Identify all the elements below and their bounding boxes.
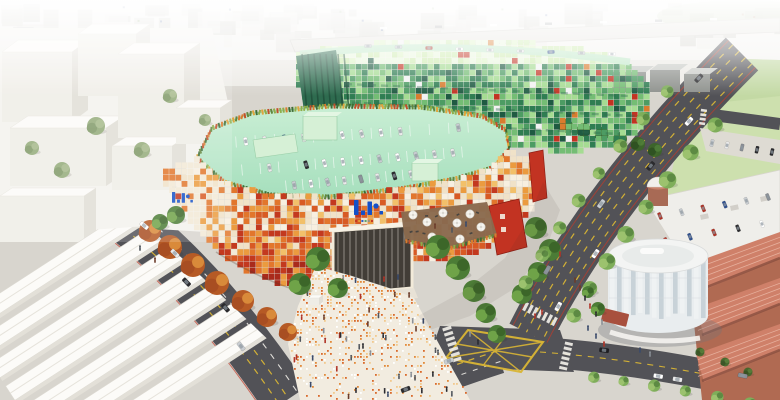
person-body bbox=[385, 337, 387, 341]
plaza-dot bbox=[375, 302, 377, 304]
facade-pixel bbox=[454, 193, 460, 199]
plaza-dot bbox=[315, 326, 317, 328]
facade-pixel bbox=[256, 268, 262, 274]
person-body bbox=[534, 315, 536, 319]
plaza-dot bbox=[354, 299, 356, 301]
plaza-dot bbox=[309, 326, 311, 328]
facade-pixel bbox=[244, 200, 250, 206]
facade-pixel bbox=[237, 243, 243, 249]
person bbox=[368, 307, 370, 313]
plaza-dot bbox=[330, 347, 332, 349]
plaza-dot bbox=[441, 362, 443, 364]
green-facade-pixel bbox=[590, 106, 596, 112]
plaza-dot bbox=[357, 302, 359, 304]
person bbox=[323, 314, 325, 320]
plaza-dot bbox=[345, 314, 347, 316]
plaza-dot bbox=[390, 299, 392, 301]
plaza-dot bbox=[438, 374, 440, 376]
tree-canopy bbox=[299, 276, 310, 287]
plaza-dot bbox=[381, 338, 383, 340]
person bbox=[595, 311, 597, 317]
facade-pixel bbox=[231, 187, 237, 193]
plaza-dot bbox=[345, 275, 347, 277]
plaza-dot bbox=[306, 383, 308, 385]
plaza-dot bbox=[387, 344, 389, 346]
facade-pixel bbox=[467, 187, 473, 193]
person-body bbox=[370, 352, 372, 356]
plaza-dot bbox=[384, 299, 386, 301]
person-head bbox=[541, 309, 543, 311]
facade-pixel bbox=[318, 212, 324, 218]
facade-pixel bbox=[337, 193, 343, 199]
person-body bbox=[324, 339, 326, 343]
person bbox=[603, 341, 605, 347]
facade-pixel bbox=[250, 206, 256, 212]
tree-canopy bbox=[690, 146, 698, 154]
person-body bbox=[435, 336, 437, 340]
plaza-dot bbox=[324, 293, 326, 295]
green-facade-pixel bbox=[428, 100, 434, 106]
person-head bbox=[312, 355, 314, 357]
plaza-dot bbox=[390, 389, 392, 391]
plaza-dot bbox=[294, 341, 296, 343]
plaza-dot bbox=[384, 287, 386, 289]
plaza-dot bbox=[321, 281, 323, 283]
plaza-dot bbox=[354, 314, 356, 316]
facade-pixel bbox=[473, 181, 479, 187]
person-head bbox=[579, 285, 581, 287]
perimeter-planting bbox=[459, 175, 461, 180]
tree-canopy bbox=[597, 304, 604, 311]
person-head bbox=[410, 372, 412, 374]
tree-canopy bbox=[715, 119, 723, 127]
plaza-dot bbox=[336, 272, 338, 274]
tree-canopy bbox=[287, 325, 296, 334]
plaza-dot bbox=[444, 386, 446, 388]
facade-pixel bbox=[237, 237, 243, 243]
plaza-dot bbox=[357, 350, 359, 352]
deck-core-roof bbox=[412, 159, 443, 163]
facade-pixel bbox=[523, 187, 529, 193]
plaza-dot bbox=[360, 281, 362, 283]
plaza-dot bbox=[339, 359, 341, 361]
person-body bbox=[398, 375, 400, 379]
facade-pixel bbox=[281, 243, 287, 249]
plaza-dot bbox=[393, 362, 395, 364]
person bbox=[534, 313, 536, 319]
person bbox=[451, 391, 453, 397]
green-facade-pixel bbox=[530, 142, 536, 148]
plaza-dot bbox=[363, 356, 365, 358]
small-sign-mark bbox=[365, 220, 367, 222]
plaza-dot bbox=[423, 335, 425, 337]
plaza-dot bbox=[375, 392, 377, 394]
plaza-dot bbox=[369, 305, 371, 307]
plaza-dot bbox=[312, 275, 314, 277]
plaza-dot bbox=[372, 299, 374, 301]
terrace-planting bbox=[480, 238, 482, 242]
plaza-dot bbox=[348, 332, 350, 334]
plaza-dot bbox=[411, 311, 413, 313]
person bbox=[348, 394, 350, 400]
green-facade-pixel bbox=[602, 124, 608, 130]
plaza-dot bbox=[402, 302, 404, 304]
green-facade-pixel bbox=[620, 100, 626, 106]
plaza-dot bbox=[315, 308, 317, 310]
plaza-dot bbox=[363, 389, 365, 391]
facade-pixel bbox=[430, 193, 436, 199]
facade-pixel bbox=[442, 193, 448, 199]
facade-pixel bbox=[461, 249, 467, 255]
plaza-dot bbox=[432, 356, 434, 358]
terrace-furniture bbox=[425, 215, 428, 217]
perimeter-planting bbox=[473, 112, 475, 117]
plaza-dot bbox=[372, 308, 374, 310]
tree-canopy bbox=[654, 381, 660, 387]
facade-pixel bbox=[374, 193, 380, 199]
person-head bbox=[412, 318, 414, 320]
person bbox=[387, 391, 389, 397]
person-body bbox=[340, 334, 342, 338]
facade-pixel bbox=[262, 193, 268, 199]
facade-pixel bbox=[473, 249, 479, 255]
plaza-dot bbox=[336, 317, 338, 319]
plaza-dot bbox=[351, 299, 353, 301]
plaza-dot bbox=[330, 395, 332, 397]
green-facade-pixel bbox=[602, 100, 608, 106]
plaza-dot bbox=[375, 317, 377, 319]
facade-pixel bbox=[498, 187, 504, 193]
facade-pixel bbox=[275, 268, 281, 274]
plaza-dot bbox=[318, 344, 320, 346]
facade-pixel bbox=[287, 231, 293, 237]
person-body bbox=[154, 259, 156, 263]
person bbox=[421, 388, 423, 394]
person-body bbox=[410, 374, 412, 378]
umbrella bbox=[423, 218, 431, 226]
plaza-dot bbox=[396, 392, 398, 394]
facade-pixel bbox=[417, 200, 423, 206]
facade-pixel bbox=[299, 200, 305, 206]
green-facade-pixel bbox=[548, 124, 554, 130]
facade-pixel bbox=[299, 206, 305, 212]
plaza-dot bbox=[336, 320, 338, 322]
person-body bbox=[358, 346, 360, 350]
person-body bbox=[301, 316, 303, 320]
plaza-dot bbox=[336, 374, 338, 376]
green-facade-pixel bbox=[554, 142, 560, 148]
plaza-dot bbox=[423, 326, 425, 328]
facade-pixel bbox=[448, 187, 454, 193]
plaza-dot bbox=[333, 275, 335, 277]
person-head bbox=[336, 366, 338, 368]
person bbox=[355, 387, 357, 393]
person-body bbox=[437, 351, 439, 355]
green-facade-pixel bbox=[632, 130, 638, 136]
person bbox=[541, 309, 543, 315]
plaza-dot bbox=[378, 290, 380, 292]
facade-pixel bbox=[423, 200, 429, 206]
green-facade-pixel bbox=[602, 136, 608, 142]
tree-canopy bbox=[549, 242, 560, 253]
plaza-dot bbox=[339, 386, 341, 388]
green-facade-pixel bbox=[512, 142, 518, 148]
facade-pixel bbox=[306, 231, 312, 237]
facade-pixel bbox=[399, 200, 405, 206]
terrace-planting bbox=[453, 245, 455, 249]
facade-pixel bbox=[349, 218, 355, 224]
plaza-dot bbox=[390, 302, 392, 304]
person-head bbox=[367, 321, 369, 323]
tree-canopy bbox=[667, 173, 676, 182]
facade-pixel bbox=[262, 243, 268, 249]
person bbox=[595, 333, 597, 339]
plaza-dot bbox=[330, 371, 332, 373]
person-body bbox=[294, 359, 296, 363]
person bbox=[432, 371, 434, 377]
terrace-planting bbox=[409, 240, 411, 244]
plaza-dot bbox=[393, 344, 395, 346]
facade-pixel bbox=[430, 181, 436, 187]
umbrella-pole bbox=[426, 221, 427, 222]
facade-pixel bbox=[523, 169, 529, 175]
facade-pixel bbox=[256, 218, 262, 224]
plaza-dot bbox=[357, 290, 359, 292]
facade-pixel bbox=[504, 150, 510, 156]
plaza-dot bbox=[393, 305, 395, 307]
tree-canopy bbox=[496, 327, 505, 336]
facade-pixel bbox=[442, 181, 448, 187]
plaza-dot bbox=[366, 356, 368, 358]
person-body bbox=[595, 335, 597, 339]
plaza-dot bbox=[363, 293, 365, 295]
facade-pixel bbox=[268, 249, 274, 255]
green-facade-pixel bbox=[554, 106, 560, 112]
plaza-dot bbox=[318, 353, 320, 355]
plaza-dot bbox=[309, 344, 311, 346]
facade-pixel bbox=[312, 237, 318, 243]
person-head bbox=[293, 357, 295, 359]
plaza-dot bbox=[306, 338, 308, 340]
facade-pixel bbox=[392, 212, 398, 218]
person bbox=[383, 276, 385, 282]
plaza-dot bbox=[381, 353, 383, 355]
person-head bbox=[601, 319, 603, 321]
plaza-dot bbox=[324, 353, 326, 355]
facade-pixel bbox=[281, 212, 287, 218]
facade-pixel bbox=[498, 156, 504, 162]
person-head bbox=[394, 291, 396, 293]
plaza-dot bbox=[408, 335, 410, 337]
plaza-dot bbox=[417, 371, 419, 373]
facade-pixel bbox=[293, 231, 299, 237]
plaza-dot bbox=[327, 305, 329, 307]
car bbox=[599, 348, 609, 353]
plaza-dot bbox=[405, 311, 407, 313]
person-head bbox=[359, 294, 361, 296]
person-head bbox=[434, 347, 436, 349]
plaza-dot bbox=[330, 299, 332, 301]
plaza-dot bbox=[369, 296, 371, 298]
facade-pixel bbox=[510, 150, 516, 156]
facade-pixel bbox=[523, 156, 529, 162]
plaza-dot bbox=[330, 341, 332, 343]
facade-pixel bbox=[516, 181, 522, 187]
person-head bbox=[595, 333, 597, 335]
plaza-dot bbox=[372, 296, 374, 298]
plaza-dot bbox=[342, 392, 344, 394]
plaza-dot bbox=[408, 338, 410, 340]
facade-pixel bbox=[504, 187, 510, 193]
plaza-dot bbox=[411, 302, 413, 304]
person-body bbox=[639, 349, 641, 353]
plaza-dot bbox=[432, 335, 434, 337]
plaza-dot bbox=[303, 380, 305, 382]
facade-pixel bbox=[299, 193, 305, 199]
plaza-dot bbox=[330, 353, 332, 355]
person-body bbox=[451, 229, 453, 233]
terrace-planting bbox=[459, 243, 461, 247]
facade-pixel bbox=[256, 193, 262, 199]
plaza-dot bbox=[306, 368, 308, 370]
plaza-dot bbox=[315, 374, 317, 376]
person bbox=[469, 331, 471, 337]
green-facade-pixel bbox=[434, 100, 440, 106]
plaza-dot bbox=[417, 365, 419, 367]
person-head bbox=[414, 375, 416, 377]
plaza-dot bbox=[399, 356, 401, 358]
perimeter-planting bbox=[414, 104, 416, 109]
facade-pixel bbox=[287, 206, 293, 212]
green-facade-pixel bbox=[602, 106, 608, 112]
plaza-dot bbox=[381, 347, 383, 349]
terrace-planting bbox=[489, 235, 491, 239]
plaza-dot bbox=[411, 344, 413, 346]
person-body bbox=[387, 393, 389, 397]
plaza-dot bbox=[423, 362, 425, 364]
green-facade-pixel bbox=[590, 142, 596, 148]
person bbox=[397, 274, 399, 280]
facade-pixel bbox=[343, 218, 349, 224]
tree-canopy bbox=[643, 114, 650, 121]
green-facade-pixel bbox=[584, 106, 590, 112]
green-facade-pixel bbox=[614, 118, 620, 124]
facade-pixel bbox=[213, 243, 219, 249]
person bbox=[437, 350, 439, 356]
facade-pixel bbox=[299, 218, 305, 224]
plaza-dot bbox=[465, 392, 467, 394]
green-facade-pixel bbox=[572, 118, 578, 124]
person-head bbox=[639, 347, 641, 349]
facade-pixel bbox=[231, 237, 237, 243]
umbrella-pole bbox=[456, 222, 457, 223]
plaza-dot bbox=[363, 299, 365, 301]
green-facade-pixel bbox=[524, 100, 530, 106]
facade-pixel bbox=[306, 193, 312, 199]
green-facade-pixel bbox=[524, 142, 530, 148]
tree-canopy bbox=[485, 306, 495, 316]
plaza-dot bbox=[315, 344, 317, 346]
perimeter-planting bbox=[427, 106, 429, 111]
perimeter-planting bbox=[445, 108, 447, 113]
person-head bbox=[377, 313, 379, 315]
plaza-dot bbox=[336, 389, 338, 391]
facade-pixel bbox=[318, 237, 324, 243]
plaza-dot bbox=[360, 392, 362, 394]
green-facade-pixel bbox=[566, 148, 572, 154]
green-facade-pixel bbox=[638, 100, 644, 106]
person-body bbox=[367, 323, 369, 327]
facade-pixel bbox=[281, 255, 287, 261]
tree-canopy bbox=[559, 223, 566, 230]
green-facade-pixel bbox=[614, 106, 620, 112]
plaza-dot bbox=[411, 299, 413, 301]
plaza-dot bbox=[306, 356, 308, 358]
green-facade-pixel bbox=[512, 118, 518, 124]
plaza-dot bbox=[318, 350, 320, 352]
plaza-dot bbox=[399, 296, 401, 298]
facade-pixel bbox=[268, 237, 274, 243]
plaza-dot bbox=[342, 305, 344, 307]
plaza-dot bbox=[429, 395, 431, 397]
person-body bbox=[574, 279, 576, 283]
person bbox=[601, 319, 603, 325]
person-head bbox=[587, 325, 589, 327]
plaza-dot bbox=[384, 317, 386, 319]
green-facade-pixel bbox=[626, 118, 632, 124]
plaza-dot bbox=[375, 383, 377, 385]
plaza-dot bbox=[339, 338, 341, 340]
green-facade-pixel bbox=[548, 100, 554, 106]
green-facade-pixel bbox=[536, 136, 542, 142]
plaza-dot bbox=[423, 350, 425, 352]
plaza-dot bbox=[297, 311, 299, 313]
plaza-dot bbox=[348, 308, 350, 310]
plaza-dot bbox=[309, 314, 311, 316]
person bbox=[434, 223, 436, 229]
plaza-dot bbox=[390, 314, 392, 316]
person bbox=[639, 347, 641, 353]
green-facade-pixel bbox=[590, 118, 596, 124]
plaza-dot bbox=[297, 332, 299, 334]
plaza-dot bbox=[363, 323, 365, 325]
person-head bbox=[323, 314, 325, 316]
facade-pixel bbox=[386, 206, 392, 212]
facade-pixel bbox=[287, 224, 293, 230]
green-facade-pixel bbox=[638, 106, 644, 112]
tree-canopy bbox=[588, 288, 594, 294]
plaza-dot bbox=[390, 347, 392, 349]
plaza-dot bbox=[297, 344, 299, 346]
plaza-dot bbox=[387, 296, 389, 298]
plaza-dot bbox=[375, 335, 377, 337]
green-facade-pixel bbox=[626, 124, 632, 130]
plaza-dot bbox=[306, 308, 308, 310]
green-facade-pixel bbox=[548, 136, 554, 142]
plaza-dot bbox=[366, 290, 368, 292]
plaza-dot bbox=[396, 356, 398, 358]
person-body bbox=[595, 313, 597, 317]
plaza-dot bbox=[312, 344, 314, 346]
facade-pixel bbox=[442, 187, 448, 193]
plaza-dot bbox=[354, 317, 356, 319]
person bbox=[451, 227, 453, 233]
person bbox=[412, 318, 414, 324]
facade-pixel bbox=[237, 212, 243, 218]
green-facade-pixel bbox=[548, 148, 554, 154]
green-facade-pixel bbox=[536, 142, 542, 148]
plaza-dot bbox=[441, 392, 443, 394]
